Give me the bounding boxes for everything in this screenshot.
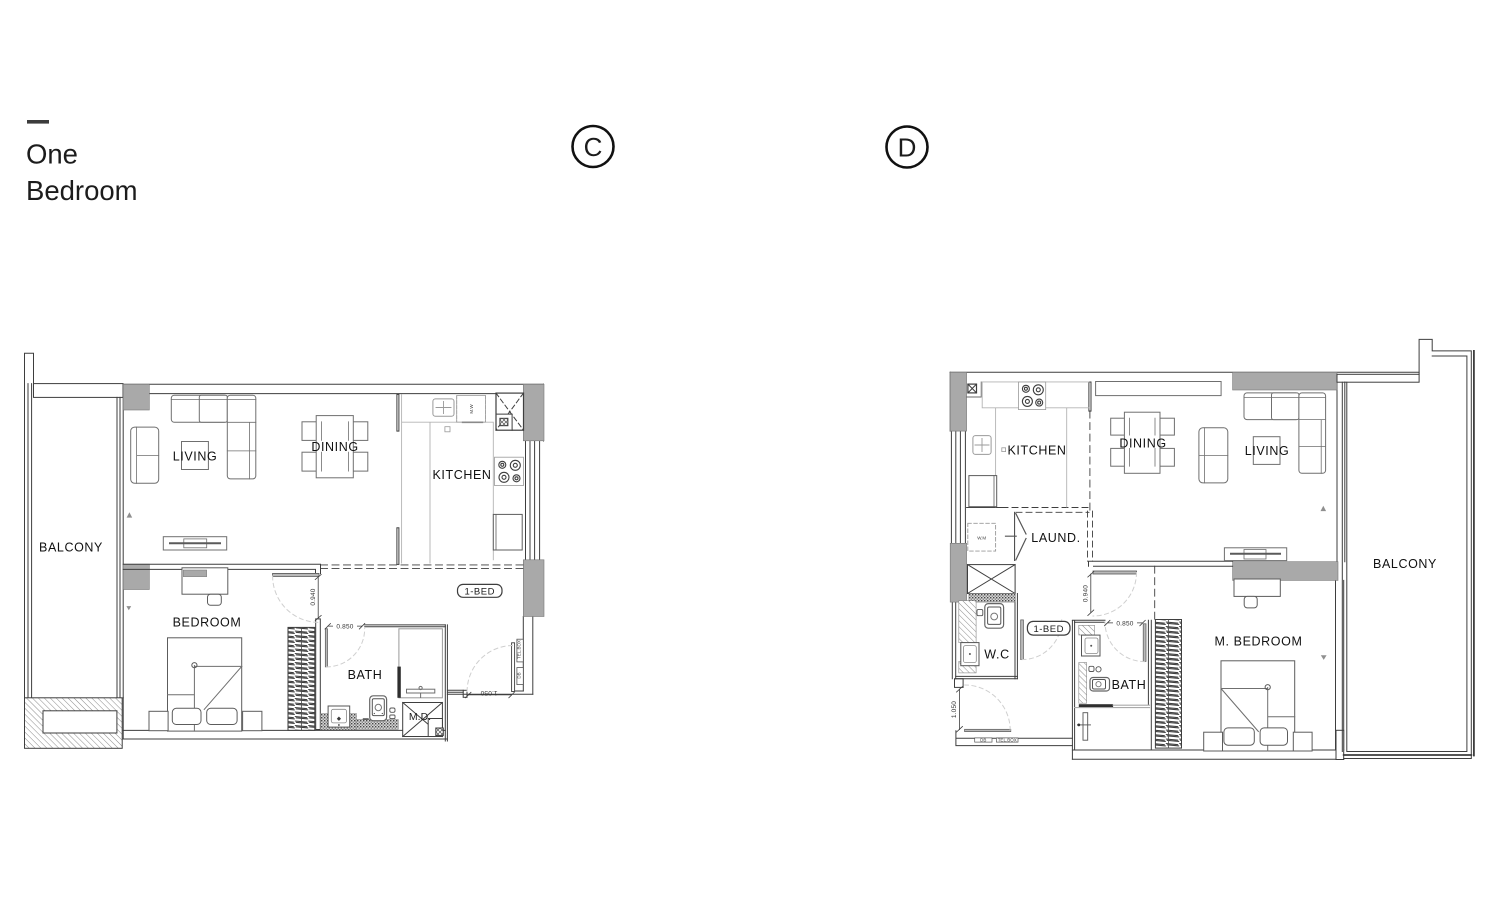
svg-text:1.050: 1.050	[951, 701, 958, 718]
svg-text:KITCHEN: KITCHEN	[432, 468, 491, 482]
svg-text:LIVING: LIVING	[1245, 444, 1290, 458]
svg-text:M. BEDROOM: M. BEDROOM	[1215, 635, 1303, 649]
svg-text:BALCONY: BALCONY	[39, 541, 103, 555]
svg-text:W.M: W.M	[977, 536, 986, 541]
svg-text:0.850: 0.850	[336, 624, 353, 631]
svg-text:TEL.BOX: TEL.BOX	[517, 640, 522, 659]
svg-text:0.940: 0.940	[310, 588, 317, 605]
svg-text:KITCHEN: KITCHEN	[1007, 444, 1066, 458]
svg-text:DB: DB	[517, 672, 522, 678]
svg-text:1.050: 1.050	[480, 689, 497, 696]
svg-text:W.C: W.C	[984, 648, 1009, 662]
svg-text:TEL.BOX: TEL.BOX	[998, 738, 1017, 743]
svg-text:BEDROOM: BEDROOM	[173, 616, 242, 630]
svg-text:One: One	[26, 139, 78, 170]
svg-text:LIVING: LIVING	[173, 450, 218, 464]
svg-text:0.850: 0.850	[1116, 621, 1133, 628]
svg-text:M.W: M.W	[469, 404, 474, 414]
svg-text:DINING: DINING	[311, 440, 358, 454]
svg-text:D: D	[898, 133, 917, 163]
svg-text:DINING: DINING	[1119, 437, 1166, 451]
svg-text:DB: DB	[980, 738, 986, 743]
svg-text:LAUND.: LAUND.	[1031, 531, 1080, 545]
svg-text:BALCONY: BALCONY	[1373, 557, 1437, 571]
svg-text:BATH: BATH	[1112, 678, 1147, 692]
svg-text:1-BED: 1-BED	[1033, 624, 1063, 635]
svg-text:C: C	[584, 132, 603, 162]
svg-text:Bedroom: Bedroom	[26, 175, 138, 206]
svg-text:BATH: BATH	[348, 668, 383, 682]
svg-text:0.940: 0.940	[1083, 585, 1090, 602]
svg-text:1-BED: 1-BED	[464, 586, 494, 597]
svg-text:M.D.: M.D.	[409, 711, 431, 723]
